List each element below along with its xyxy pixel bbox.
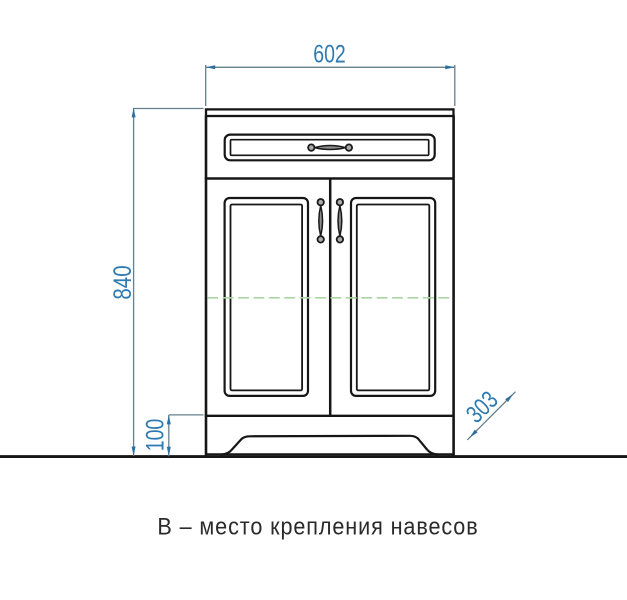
svg-text:602: 602 [313,40,346,68]
svg-text:840: 840 [108,265,136,299]
svg-text:В – место крепления навесов: В – место крепления навесов [157,512,478,539]
svg-text:100: 100 [141,419,169,452]
